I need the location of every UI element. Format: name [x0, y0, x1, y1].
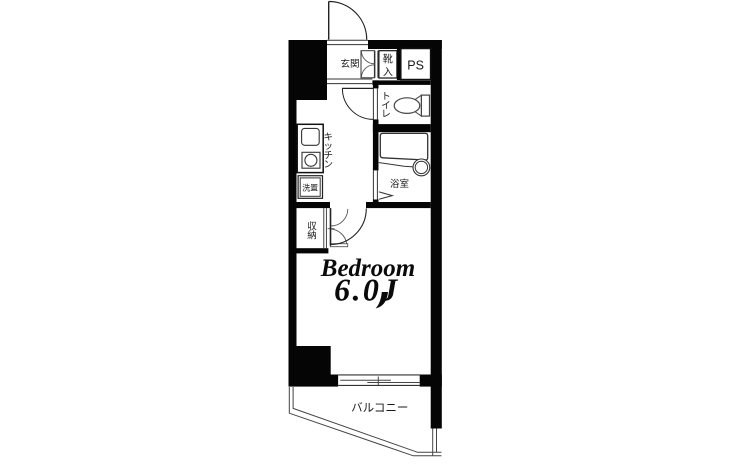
svg-text:入: 入: [383, 68, 393, 79]
svg-text:納: 納: [307, 230, 317, 242]
svg-text:6.0J: 6.0J: [334, 272, 400, 308]
svg-text:浴室: 浴室: [390, 178, 409, 190]
svg-text:レ: レ: [381, 109, 391, 120]
svg-text:ン: ン: [323, 160, 333, 171]
svg-text:洗置: 洗置: [302, 183, 318, 193]
svg-text:PS: PS: [407, 58, 424, 72]
svg-text:玄関: 玄関: [340, 58, 359, 70]
svg-text:靴: 靴: [383, 53, 393, 66]
svg-text:バルコニー: バルコニー: [351, 402, 408, 415]
